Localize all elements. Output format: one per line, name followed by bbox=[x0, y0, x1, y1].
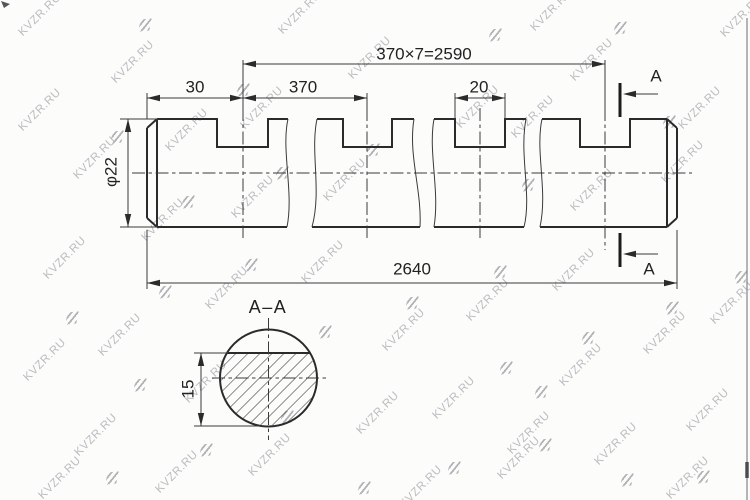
dim-section-height-label: 15 bbox=[178, 380, 197, 399]
section-letter-top: A bbox=[650, 66, 662, 85]
technical-drawing: KVZR.RUKVZR.RUKVZR.RUKVZR.RUKVZR.RUKVZR.… bbox=[0, 0, 750, 500]
dim-end-offset-label: 30 bbox=[186, 77, 205, 96]
section-letter-bottom: A bbox=[643, 259, 655, 278]
dim-overall-length-label: 2640 bbox=[393, 259, 431, 278]
front-view: 370×7=2590 30 370 20 2640 φ22 A A bbox=[101, 44, 692, 289]
dim-slot-width-label: 20 bbox=[470, 77, 489, 96]
section-view: A–A 15 bbox=[178, 297, 326, 440]
sheet-right-border-mark bbox=[745, 462, 748, 478]
dim-diameter-label: φ22 bbox=[101, 157, 120, 187]
scan-speck bbox=[1, 1, 10, 8]
section-title: A–A bbox=[249, 297, 288, 317]
dim-total-pattern-label: 370×7=2590 bbox=[376, 44, 472, 63]
section-cut-arrowheads bbox=[623, 91, 636, 257]
sheet-frame bbox=[1, 1, 749, 500]
shaft-drawing-canvas: 370×7=2590 30 370 20 2640 φ22 A A A–A 15 bbox=[0, 0, 750, 500]
dim-pitch-label: 370 bbox=[289, 77, 317, 96]
